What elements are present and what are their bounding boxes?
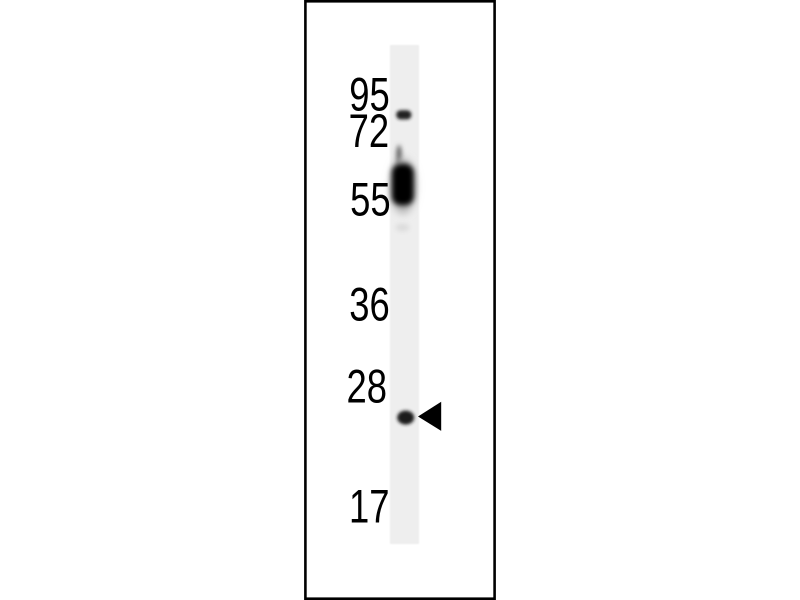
svg-text:17: 17 (349, 480, 390, 533)
svg-text:55: 55 (350, 173, 391, 226)
svg-text:28: 28 (346, 360, 387, 413)
svg-text:36: 36 (349, 278, 390, 331)
svg-text:72: 72 (349, 105, 390, 158)
